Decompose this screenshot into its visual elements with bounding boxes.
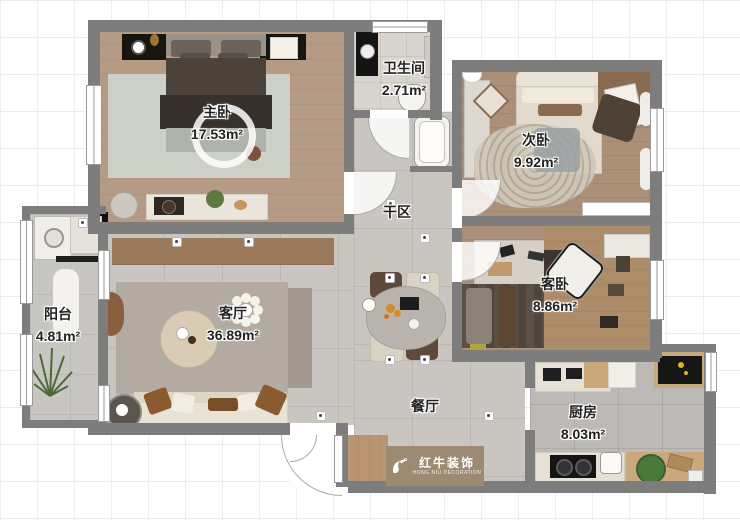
balcony-sliding-door [98, 250, 110, 300]
desk-item [616, 256, 630, 272]
mirror [162, 200, 176, 214]
room-area: 9.92m² [514, 152, 558, 174]
guest-bedroom-door-gap [452, 242, 462, 282]
kitchen-sink [600, 452, 622, 474]
wall-segment [452, 228, 462, 242]
guest-bed-rail [498, 286, 516, 346]
wall-segment [452, 350, 660, 362]
shelf [604, 234, 650, 258]
room-label-dining-room: 餐厅 [411, 396, 439, 418]
radiator [582, 202, 656, 216]
wall-segment [88, 423, 290, 435]
cup [408, 318, 420, 330]
wall-segment [654, 344, 710, 352]
flowers [386, 304, 395, 313]
window [20, 220, 33, 304]
second-bedroom-door-gap [452, 188, 462, 228]
room-name: 客厅 [207, 303, 259, 325]
room-name: 厨房 [561, 402, 605, 424]
room-name: 阳台 [36, 304, 80, 326]
wall-segment [344, 20, 354, 174]
nightstand-dish [131, 40, 146, 55]
washer-door [44, 228, 64, 248]
wall-segment [410, 166, 452, 172]
spotlight [385, 273, 395, 283]
room-label-guest-bedroom: 客卧 8.86m² [533, 274, 577, 317]
room-name: 卫生间 [382, 58, 426, 80]
wall-segment [525, 362, 535, 388]
balcony-sliding-door [98, 385, 110, 422]
wall-segment [452, 216, 660, 226]
table-dish [176, 327, 189, 340]
gold-dish [234, 200, 247, 210]
nightstand-cloth [270, 37, 298, 59]
wall-segment [354, 110, 370, 118]
master-bed-duvet [166, 58, 266, 98]
floor-plan: 主卧 17.53m² 卫生间 2.71m² 次卧 9.92m² 干区 客卧 8.… [0, 0, 740, 520]
tv-console [112, 238, 334, 265]
room-label-living-room: 客厅 36.89m² [207, 303, 259, 346]
washbasin [360, 44, 375, 59]
brand-name-cn: 红牛装饰 [413, 457, 482, 469]
brand-text: 红牛装饰 HONG NIU DECORATION [413, 457, 482, 476]
spotlight [78, 218, 88, 228]
wall-segment [22, 206, 106, 214]
counter-white-section [608, 362, 636, 388]
master-door-gap [344, 172, 354, 214]
room-area: 36.89m² [207, 325, 259, 347]
stool [110, 192, 138, 219]
room-name: 干区 [383, 202, 411, 224]
room-name: 主卧 [191, 102, 243, 124]
side-table-center [116, 404, 128, 416]
window [86, 85, 102, 165]
room-area: 4.81m² [36, 326, 80, 348]
room-area: 2.71m² [382, 80, 426, 102]
window [20, 334, 33, 406]
bathroom-door-gap [370, 110, 408, 118]
sofa-pillow [208, 398, 238, 411]
entry-wood-floor [348, 435, 388, 483]
spotlight [484, 411, 494, 421]
spotlight [385, 355, 395, 365]
window [650, 108, 664, 172]
brand-name-en: HONG NIU DECORATION [413, 471, 482, 476]
kettle [362, 298, 376, 312]
shelf-strip [56, 256, 98, 262]
wall-segment [408, 110, 442, 118]
kitchen-plant [636, 454, 666, 484]
room-label-balcony: 阳台 4.81m² [36, 304, 80, 347]
accent-pillow [538, 104, 582, 116]
room-name: 餐厅 [411, 396, 439, 418]
dining-table [366, 286, 446, 350]
spotlight [420, 233, 430, 243]
spotlight [316, 411, 326, 421]
wall-segment [430, 20, 442, 120]
window [372, 21, 428, 33]
entrance-door-leaf [334, 435, 343, 483]
pillow [522, 88, 594, 103]
counter-wood-section [584, 362, 610, 388]
spotlight [244, 237, 254, 247]
window [650, 260, 664, 320]
countertop-appliance [566, 368, 582, 379]
burner [556, 459, 573, 476]
fridge [658, 356, 702, 384]
living-rug-side [288, 288, 312, 388]
table-cup [188, 336, 196, 344]
wall-segment [452, 60, 660, 72]
room-name: 次卧 [514, 130, 558, 152]
room-area: 8.03m² [561, 424, 605, 446]
bull-logo-icon [389, 456, 409, 476]
room-label-kitchen: 厨房 8.03m² [561, 402, 605, 445]
wall-segment [88, 222, 354, 234]
desk-item [600, 316, 618, 328]
bathtub-inner [419, 121, 445, 163]
room-label-dry-area: 干区 [383, 202, 411, 224]
serving-tray [400, 297, 419, 310]
guest-bed-pillows [466, 288, 492, 344]
desk-item [608, 284, 624, 296]
room-area: 17.53m² [191, 124, 243, 146]
spotlight [420, 355, 430, 365]
dresser-plant [206, 190, 224, 208]
spotlight [172, 237, 182, 247]
wall-segment [452, 60, 462, 188]
wall-segment [525, 430, 535, 485]
room-name: 客卧 [533, 274, 577, 296]
spotlight [420, 273, 430, 283]
room-label-second-bedroom: 次卧 9.92m² [514, 130, 558, 173]
room-area: 8.86m² [533, 296, 577, 318]
window [705, 352, 717, 392]
fridge-magnet [678, 362, 684, 368]
burner [575, 459, 592, 476]
vase [150, 34, 159, 46]
sofa-pillow [171, 392, 196, 414]
room-label-bathroom: 卫生间 2.71m² [382, 58, 426, 101]
countertop-appliance [543, 368, 561, 381]
wall-segment [452, 282, 462, 352]
room-label-master-bedroom: 主卧 17.53m² [191, 102, 243, 145]
brand-watermark: 红牛装饰 HONG NIU DECORATION [386, 446, 484, 486]
